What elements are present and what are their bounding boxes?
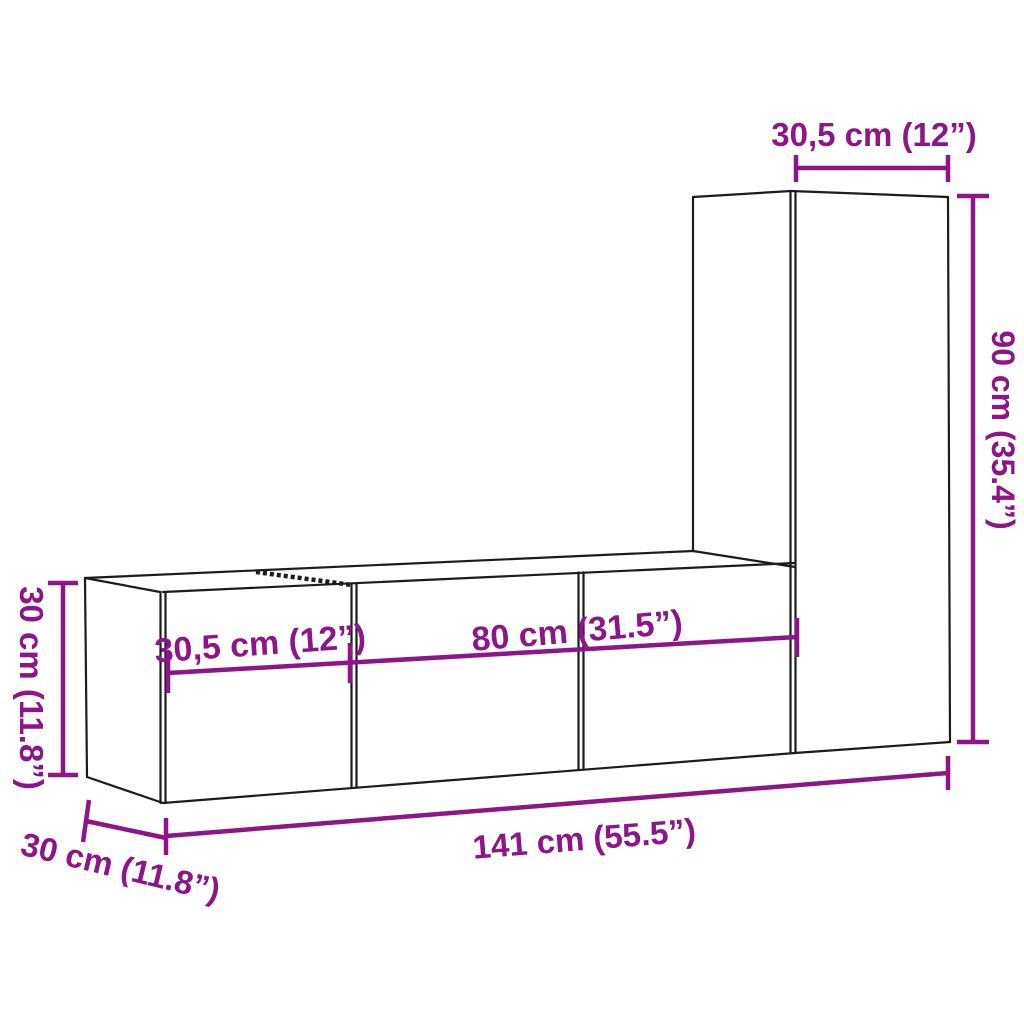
furniture-diagram-svg: 30,5 cm (12”) 90 cm (35.4”) 30 cm (11.8”…: [0, 0, 1024, 1024]
tall-cabinet-front-face: [791, 191, 950, 753]
tall-cabinet-side-face: [693, 191, 795, 565]
low-cabinets-front-face: [163, 563, 795, 803]
label-depth: 30 cm (11.8”): [17, 825, 224, 909]
dimension-line-depth: [86, 821, 166, 838]
label-total-width: 141 cm (55.5”): [471, 811, 697, 865]
tick-depth-left: [83, 800, 89, 842]
label-right-height: 90 cm (35.4”): [985, 330, 1021, 529]
low-cabinet-row: [85, 551, 795, 803]
label-top-width: 30,5 cm (12”): [771, 116, 976, 153]
label-left-height: 30 cm (11.8”): [13, 586, 50, 790]
dimension-diagram-page: 30,5 cm (12”) 90 cm (35.4”) 30 cm (11.8”…: [0, 0, 1024, 1024]
left-cabinet-side-face: [85, 578, 163, 803]
